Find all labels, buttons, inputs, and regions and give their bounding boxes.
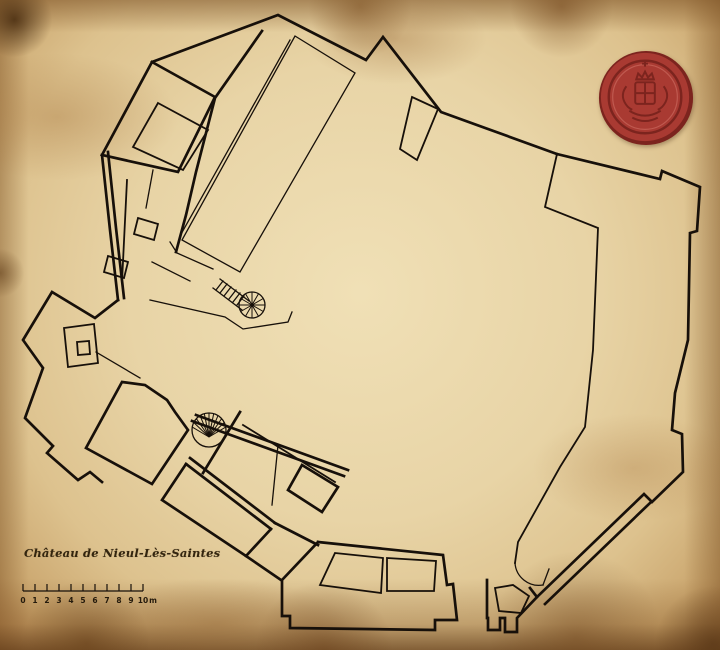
scale-bar-unit: m bbox=[149, 596, 157, 605]
parchment-page: 012345678910m Château de Nieul-Lès-Saint… bbox=[0, 0, 720, 650]
wall-segment bbox=[275, 523, 318, 545]
plan-line bbox=[216, 281, 223, 290]
wall-segment bbox=[320, 553, 383, 593]
wall-segment bbox=[102, 62, 215, 172]
wall-segment bbox=[495, 585, 529, 613]
plan-line bbox=[224, 287, 231, 296]
plan-line bbox=[233, 293, 240, 302]
wall-segment bbox=[400, 97, 438, 160]
scale-bar-label: 0 bbox=[20, 596, 25, 605]
wall-segment bbox=[23, 292, 118, 482]
scale-bar-label: 7 bbox=[104, 596, 109, 605]
plan-line bbox=[515, 563, 543, 585]
scale-bar-label: 10 bbox=[138, 596, 148, 605]
scale-bar-label: 9 bbox=[128, 596, 133, 605]
plan-line bbox=[96, 352, 140, 378]
plan-line bbox=[272, 445, 278, 505]
plan-line bbox=[237, 296, 244, 305]
scale-bar-label: 2 bbox=[44, 596, 49, 605]
scale-bar: 012345678910m bbox=[20, 584, 157, 605]
spiral-staircase-upper bbox=[239, 292, 265, 318]
wall-segment bbox=[190, 458, 275, 523]
wall-segment bbox=[86, 382, 188, 484]
wall-segment bbox=[243, 425, 335, 482]
wall-segment bbox=[246, 556, 281, 580]
scale-bar-label: 1 bbox=[32, 596, 37, 605]
scale-bar-label: 8 bbox=[116, 596, 121, 605]
wall-segment bbox=[387, 558, 436, 591]
plan-line bbox=[152, 262, 190, 281]
scale-bar-label: 6 bbox=[92, 596, 97, 605]
plan-line bbox=[146, 170, 153, 208]
wall-segment bbox=[186, 464, 271, 529]
plan-line bbox=[229, 290, 236, 299]
wall-segment bbox=[77, 341, 90, 355]
wall-segment bbox=[282, 542, 457, 630]
plan-line bbox=[182, 36, 355, 272]
wall-segment bbox=[134, 218, 158, 240]
plan-line bbox=[220, 284, 227, 293]
scale-bar-label: 4 bbox=[68, 596, 73, 605]
plan-title: Château de Nieul-Lès-Saintes bbox=[24, 546, 224, 560]
plan-line bbox=[543, 569, 549, 585]
wall-segment bbox=[545, 503, 650, 604]
plan-line bbox=[150, 300, 292, 329]
wall-segment bbox=[515, 154, 598, 563]
scale-bar-ruler bbox=[23, 584, 143, 591]
plan-line bbox=[220, 279, 249, 301]
wall-segment bbox=[104, 256, 128, 278]
scale-bar-label: 3 bbox=[56, 596, 61, 605]
wall-segment bbox=[537, 154, 700, 597]
scale-bar-label: 5 bbox=[80, 596, 85, 605]
wall-segment bbox=[64, 324, 98, 367]
wall-segment bbox=[152, 15, 557, 154]
wax-seal bbox=[597, 49, 695, 147]
spiral-staircase-lower bbox=[192, 413, 226, 447]
